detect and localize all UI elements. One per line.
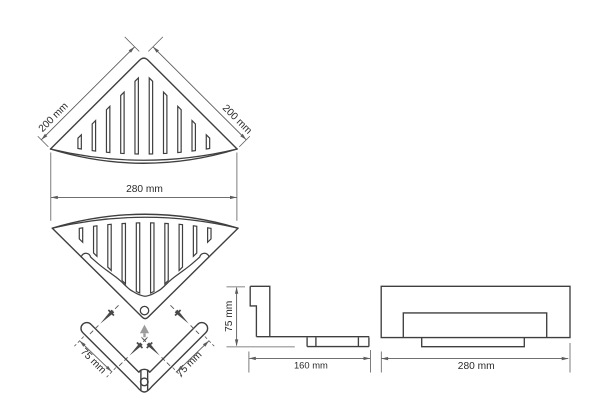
svg-text:160 mm: 160 mm xyxy=(294,360,328,371)
svg-text:280 mm: 280 mm xyxy=(126,184,163,195)
svg-text:280 mm: 280 mm xyxy=(458,361,495,372)
svg-text:75 mm: 75 mm xyxy=(224,301,235,332)
